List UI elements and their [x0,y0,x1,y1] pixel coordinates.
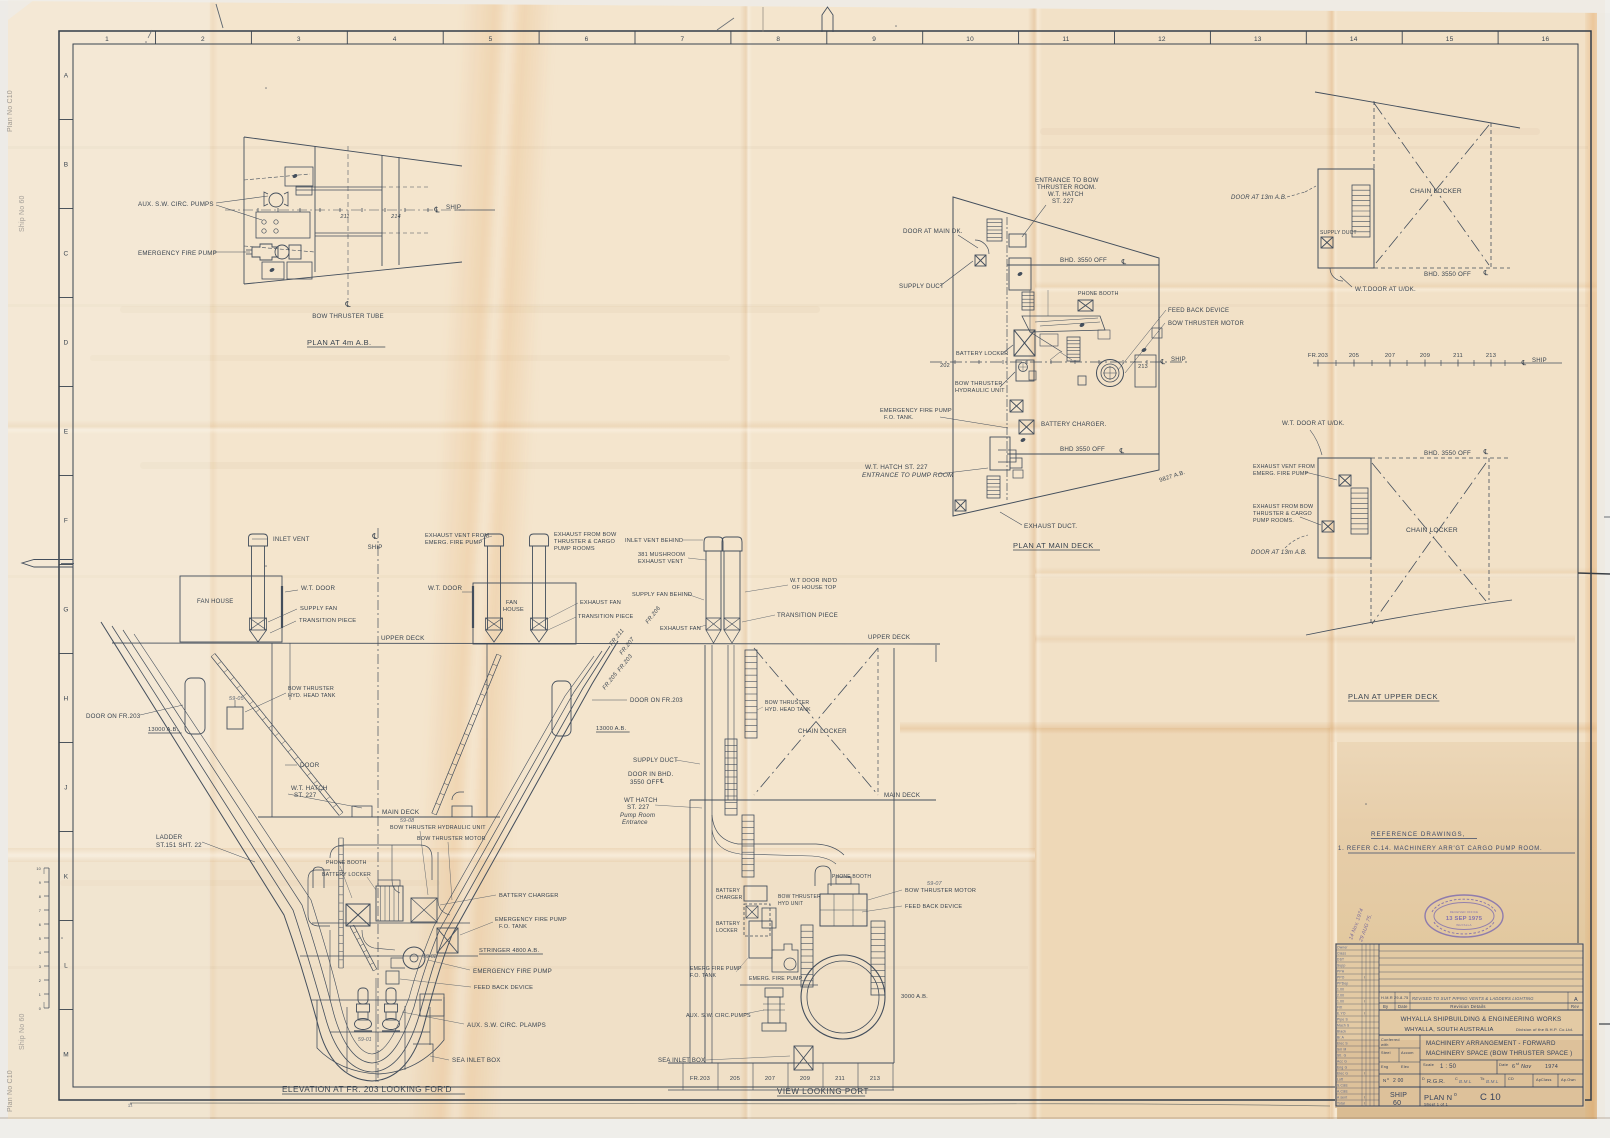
svg-text:MACHINERY ARRANGEMENT - FORWA: MACHINERY ARRANGEMENT - FORWARD [1426,1040,1556,1047]
svg-text:W.T.DOOR AT U/DK.: W.T.DOOR AT U/DK. [1355,286,1416,293]
svg-text:211: 211 [339,214,349,220]
svg-text:Elec S: Elec S [1337,1042,1348,1046]
svg-text:W.T. HATCH: W.T. HATCH [1048,192,1084,198]
svg-text:RECEIVED OFFICE: RECEIVED OFFICE [1450,910,1478,914]
svg-text:0: 0 [39,1007,41,1011]
svg-text:6: 6 [39,923,41,927]
svg-text:ST.151 SHT. 22: ST.151 SHT. 22 [156,842,202,849]
svg-text:EMERG. FIRE PUMP: EMERG. FIRE PUMP [425,540,482,546]
svg-text:BOW THRUSTER MOTOR: BOW THRUSTER MOTOR [417,836,486,842]
svg-text:59-05: 59-05 [229,696,245,702]
svg-text:DOOR IN BHD.: DOOR IN BHD. [628,771,673,778]
svg-text:INLET VENT: INLET VENT [273,537,310,543]
svg-text:with: with [1381,1043,1389,1047]
svg-text:BATTERY: BATTERY [716,921,740,927]
svg-text:EMERGENCY FIRE PUMP: EMERGENCY FIRE PUMP [473,968,552,975]
svg-text:THRUSTER ROOM.: THRUSTER ROOM. [1037,184,1096,191]
svg-text:13000 A.B.: 13000 A.B. [596,726,627,732]
svg-text:2: 2 [39,979,41,983]
svg-text:Total: Total [1337,1102,1345,1106]
svg-text:SEA INLET BOX: SEA INLET BOX [452,1057,501,1064]
svg-text:10: 10 [36,867,41,871]
svg-text:H: H [64,696,69,703]
svg-text:EMERGENCY FIRE PUMP: EMERGENCY FIRE PUMP [138,250,217,257]
svg-text:BATTERY LOCKER: BATTERY LOCKER [322,872,371,878]
svg-text:F.O. TANK: F.O. TANK [690,973,716,979]
svg-text:Br.A: Br.A [1337,1036,1345,1040]
svg-text:Plan No C10: Plan No C10 [7,90,14,132]
svg-text:INLET VENT BEHIND: INLET VENT BEHIND [625,538,683,544]
svg-text:Ship No 60: Ship No 60 [19,195,26,232]
svg-text:1974: 1974 [1545,1064,1558,1070]
svg-text:FR.206: FR.206 [645,605,663,625]
svg-text:C: C [1455,1077,1458,1081]
svg-text:15: 15 [1446,36,1454,43]
svg-text:ApClass: ApClass [1536,1078,1552,1082]
svg-text:o: o [1454,1092,1457,1098]
svg-text:3000 A.B.: 3000 A.B. [901,994,928,1000]
svg-text:F: F [64,518,68,525]
svg-text:1.00: 1.00 [1337,1000,1344,1004]
svg-text:F.O. TANK: F.O. TANK [499,924,527,930]
svg-text:Nov: Nov [1521,1064,1532,1070]
svg-text:DOOR ON FR.203: DOOR ON FR.203 [630,698,683,704]
svg-text:AUX. S.W. CIRC. PUMPS: AUX. S.W. CIRC. PUMPS [138,201,214,208]
svg-text:9: 9 [39,881,41,885]
svg-text:G: G [63,607,68,614]
svg-text:EMERGENCY FIRE PUMP: EMERGENCY FIRE PUMP [495,917,567,923]
svg-text:D: D [1422,1077,1425,1081]
svg-text:EMERGENCY FIRE PUMP: EMERGENCY FIRE PUMP [880,408,952,414]
svg-text:6: 6 [585,36,589,43]
svg-text:OF HOUSE TOP: OF HOUSE TOP [792,585,837,591]
svg-text:HYD. HEAD TANK: HYD. HEAD TANK [765,707,811,713]
svg-text:SHIP: SHIP [368,545,383,551]
svg-text:EMERG. FIRE PUMP: EMERG. FIRE PUMP [1253,471,1309,477]
svg-text:SUPPLY DUCT: SUPPLY DUCT [633,757,678,764]
svg-text:Acc G: Acc G [1337,1060,1347,1064]
svg-text:S.C&E: S.C&E [1337,1084,1348,1088]
svg-text:E: E [64,429,69,436]
svg-text:213: 213 [1486,353,1496,359]
svg-text:R.G.R.: R.G.R. [1427,1079,1445,1085]
svg-text:℄: ℄ [1121,259,1127,266]
svg-text:Tk: Tk [1480,1077,1485,1081]
svg-text:CHAIN LOCKER: CHAIN LOCKER [1406,527,1458,534]
svg-text:9827 A.B.: 9827 A.B. [1159,470,1187,484]
svg-text:8: 8 [39,895,41,899]
svg-text:Ship No 60: Ship No 60 [19,1013,26,1050]
svg-text:Supp: Supp [1337,964,1346,968]
svg-text:EMERG. FIRE PUMP: EMERG. FIRE PUMP [749,976,803,982]
svg-text:14: 14 [1350,36,1358,43]
svg-text:Fitt: Fitt [1337,1006,1342,1010]
svg-text:Sheet 1 of 1: Sheet 1 of 1 [1424,1102,1449,1107]
svg-text:M: M [63,1052,69,1059]
svg-text:BOW THRUSTER: BOW THRUSTER [288,686,334,692]
svg-text:BATTERY CHARGER.: BATTERY CHARGER. [1041,421,1107,428]
svg-text:EXHAUST VENT FROM: EXHAUST VENT FROM [1253,464,1315,470]
svg-text:℄: ℄ [659,779,664,785]
svg-text:Eng: Eng [1381,1065,1388,1069]
svg-text:LOCKER: LOCKER [716,928,738,934]
svg-text:Plan No C10: Plan No C10 [7,1070,14,1112]
svg-text:Pump Room: Pump Room [620,813,655,819]
svg-text:HOUSE: HOUSE [503,607,524,613]
svg-text:EXHAUST DUCT.: EXHAUST DUCT. [1024,523,1077,530]
svg-text:13: 13 [1254,36,1262,43]
svg-text:EMERG FIRE PUMP: EMERG FIRE PUMP [690,966,742,972]
svg-text:FR.205: FR.205 [602,671,620,691]
svg-text:PPH: PPH [1337,970,1345,974]
svg-text:PPO: PPO [1337,976,1345,980]
svg-text:J: J [64,785,67,792]
svg-text:By: By [1383,1004,1389,1009]
svg-text:3: 3 [297,36,301,43]
svg-text:o: o [1387,1077,1389,1081]
svg-text:DOOR AT MAIN DK.: DOOR AT MAIN DK. [903,228,963,235]
svg-text:A: A [1574,997,1578,1003]
svg-text:DOOR: DOOR [300,762,320,769]
svg-text:FAN: FAN [506,600,517,606]
svg-text:213: 213 [870,1076,880,1082]
svg-text:A.C&E: A.C&E [1337,1090,1348,1094]
svg-text:PHONE BOOTH: PHONE BOOTH [1078,291,1119,297]
svg-text:EXHAUST FAN: EXHAUST FAN [580,600,621,606]
svg-text:BATTERY: BATTERY [716,888,740,894]
svg-text:TRANSITION PIECE: TRANSITION PIECE [299,618,356,624]
svg-text:WHYALLA: WHYALLA [1456,923,1472,927]
svg-text:207: 207 [1385,353,1395,359]
svg-text:C 10: C 10 [1480,1092,1501,1103]
svg-text:L: L [64,963,68,970]
svg-text:FR.207: FR.207 [619,636,637,656]
svg-text:2.00: 2.00 [1337,994,1344,998]
svg-text:Pipe S: Pipe S [1337,1018,1349,1022]
svg-text:N: N [1383,1078,1386,1083]
svg-text:FEED BACK DEVICE: FEED BACK DEVICE [905,904,962,910]
svg-text:BATTERY CHARGER: BATTERY CHARGER [499,893,559,899]
svg-text:SHIP: SHIP [1390,1092,1407,1099]
svg-text:6: 6 [1512,1064,1515,1070]
svg-text:Snl M: Snl M [1337,1048,1346,1052]
svg-text:W.T. DOOR AT U/DK.: W.T. DOOR AT U/DK. [1282,420,1345,427]
svg-text:Black: Black [1337,1030,1346,1034]
svg-text:K: K [64,874,69,881]
svg-text:W.T. HATCH ST. 227: W.T. HATCH ST. 227 [865,464,928,471]
svg-text:1 : 50: 1 : 50 [1440,1064,1457,1070]
svg-text:BOW THRUSTER: BOW THRUSTER [765,700,809,706]
svg-text:℄: ℄ [1483,270,1489,277]
svg-text:PLAN AT MAIN DECK: PLAN AT MAIN DECK [1013,541,1094,550]
svg-text:TRANSITION PIECE: TRANSITION PIECE [578,614,633,620]
svg-text:BOW THRUSTER HYDRAULIC UNIT: BOW THRUSTER HYDRAULIC UNIT [390,825,486,831]
svg-text:4: 4 [39,951,41,955]
svg-text:SEA INLET BOX: SEA INLET BOX [658,1058,705,1064]
svg-text:℄: ℄ [371,532,378,541]
svg-text:EXHAUST VENT: EXHAUST VENT [638,559,684,565]
svg-text:CHAIN LOCKER: CHAIN LOCKER [1410,188,1462,195]
svg-text:W.T DOOR IND'D: W.T DOOR IND'D [790,578,837,584]
svg-text:CHARGER: CHARGER [716,895,743,901]
svg-text:MAIN DECK: MAIN DECK [382,809,420,816]
svg-text:211: 211 [1453,353,1463,359]
svg-text:Entrance: Entrance [622,820,648,826]
svg-text:Owner: Owner [1337,946,1348,950]
svg-text:FAN HOUSE: FAN HOUSE [197,599,233,605]
svg-text:Loft: Loft [1337,1078,1343,1082]
svg-text:211: 211 [835,1076,845,1082]
svg-text:60: 60 [1393,1100,1401,1107]
svg-text:Date: Date [1398,1004,1408,1009]
svg-text:202: 202 [940,363,950,369]
svg-text:B: B [64,162,69,169]
svg-text:℄: ℄ [1483,449,1489,456]
svg-text:EXHAUST FROM BOW: EXHAUST FROM BOW [554,532,617,538]
svg-text:℄: ℄ [344,300,351,309]
svg-text:C: C [64,251,69,258]
svg-text:WHYALLA, SOUTH AUSTRALIA: WHYALLA, SOUTH AUSTRALIA [1404,1027,1493,1033]
svg-text:℄: ℄ [433,206,440,215]
svg-text:PHONE BOOTH: PHONE BOOTH [832,874,871,880]
svg-text:ENTRANCE TO PUMP ROOM: ENTRANCE TO PUMP ROOM [862,472,954,479]
svg-text:HYD UNIT: HYD UNIT [778,901,803,907]
svg-text:10: 10 [966,36,974,43]
svg-text:BOW THRUSTER: BOW THRUSTER [955,381,1003,387]
svg-text:1: 1 [39,993,41,997]
svg-text:A: A [64,73,69,80]
svg-text:TRANSITION PIECE: TRANSITION PIECE [777,612,838,619]
svg-text:DOOR ON FR.203: DOOR ON FR.203 [86,713,141,720]
svg-text:CHAIN LOCKER: CHAIN LOCKER [798,728,847,735]
svg-text:381 MUSHROOM: 381 MUSHROOM [638,552,685,558]
svg-text:PPDep: PPDep [1337,982,1348,986]
svg-text:AUX. S.W. CIRC.PUMPS: AUX. S.W. CIRC.PUMPS [686,1013,751,1019]
svg-text:Steel: Steel [1381,1051,1391,1055]
svg-text:REVISED TO SUIT PIPING VENTS &: REVISED TO SUIT PIPING VENTS & LADDERS L… [1412,996,1534,1001]
svg-text:LADDER: LADDER [156,834,183,841]
svg-text:HYDRAULIC UNIT: HYDRAULIC UNIT [955,388,1005,394]
svg-text:Rev: Rev [1571,1004,1580,1009]
svg-text:9: 9 [872,36,876,43]
svg-text:FEED BACK DEVICE: FEED BACK DEVICE [474,985,533,991]
svg-text:UPPER DECK: UPPER DECK [381,635,425,642]
svg-text:Class: Class [1337,952,1346,956]
svg-text:ENTRANCE TO BOW: ENTRANCE TO BOW [1035,177,1099,184]
svg-text:2: 2 [201,36,205,43]
svg-text:PLAN AT 4m A.B.: PLAN AT 4m A.B. [307,338,372,347]
svg-text:CD: CD [1508,1077,1514,1081]
svg-text:11: 11 [1062,36,1069,43]
svg-text:FR.211: FR.211 [609,628,626,647]
svg-text:BHD. 3550 OFF: BHD. 3550 OFF [1060,257,1107,264]
svg-text:ST. 227: ST. 227 [627,804,650,811]
svg-text:5: 5 [39,937,41,941]
svg-text:SUPPLY DUCT: SUPPLY DUCT [1320,230,1357,236]
svg-text:AUX. S.W. CIRC. PLAMPS: AUX. S.W. CIRC. PLAMPS [467,1022,546,1029]
svg-text:WHYALLA SHIPBUILDING & ENGINEE: WHYALLA SHIPBUILDING & ENGINEERING WORKS [1401,1016,1562,1023]
svg-text:Accom: Accom [1401,1051,1414,1055]
svg-text:205: 205 [1349,353,1359,359]
svg-text:214: 214 [390,214,401,220]
svg-text:BHD. 3550 OFF: BHD. 3550 OFF [1424,450,1471,457]
svg-text:8: 8 [776,36,780,43]
svg-text:℄: ℄ [1521,360,1527,367]
svg-text:13000 A.B.: 13000 A.B. [148,727,179,733]
svg-text:Revision Details: Revision Details [1450,1004,1486,1009]
svg-text:59-02: 59-02 [423,954,437,960]
svg-text:Elec: Elec [1401,1065,1409,1069]
svg-text:13 SEP 1975: 13 SEP 1975 [1446,916,1483,922]
svg-text:Stl. G: Stl. G [1337,1054,1347,1058]
svg-text:FR.203: FR.203 [617,653,635,673]
svg-text:207: 207 [765,1076,775,1082]
svg-text:PUMP ROOMS.: PUMP ROOMS. [1253,518,1294,524]
svg-text:st: st [1516,1062,1519,1066]
svg-text:ST. 227: ST. 227 [1052,199,1074,205]
svg-text:Mach S: Mach S [1337,1024,1350,1028]
svg-text:VIEW LOOKING PORT: VIEW LOOKING PORT [777,1087,869,1096]
svg-text:W.T. HATCH: W.T. HATCH [291,785,328,792]
svg-text:A sent: A sent [1337,1096,1347,1100]
svg-text:EXHAUST FROM BOW: EXHAUST FROM BOW [1253,504,1314,510]
svg-text:2 00: 2 00 [1393,1078,1404,1084]
svg-text:1: 1 [105,36,109,43]
svg-text:209: 209 [800,1076,810,1082]
svg-text:SUPPLY FAN BEHIND: SUPPLY FAN BEHIND [632,592,692,598]
svg-text:5: 5 [489,36,493,43]
svg-text:59-07: 59-07 [927,881,943,887]
svg-text:FR.203: FR.203 [1308,353,1328,359]
svg-text:HYD. HEAD TANK: HYD. HEAD TANK [288,693,336,699]
svg-text:3: 3 [39,965,41,969]
svg-text:DST: DST [1337,958,1344,962]
svg-text:℄: ℄ [1160,359,1166,366]
svg-text:FR.203: FR.203 [690,1076,710,1082]
svg-text:SHIP: SHIP [1532,358,1547,364]
svg-text:1. REFER C.14. MACHINERY: 1. REFER C.14. MACHINERY ARR'GT CARGO PU… [1338,846,1542,852]
svg-text:STRINGER 4800 A.B.: STRINGER 4800 A.B. [479,948,539,954]
svg-text:1.00: 1.00 [1337,988,1344,992]
svg-text:BOW THRUSTER TUBE: BOW THRUSTER TUBE [312,313,384,320]
svg-text:E.YO: E.YO [1337,1012,1346,1016]
svg-text:PLAN AT UPPER DECK: PLAN AT UPPER DECK [1348,692,1438,701]
svg-text:EXHAUST VENT FROM: EXHAUST VENT FROM [425,533,489,539]
svg-text:REFERENCE DRAWINGS,: REFERENCE DRAWINGS, [1371,831,1465,838]
svg-text:BOW THRUSTER MOTOR: BOW THRUSTER MOTOR [1168,321,1245,327]
svg-text:3550 OFF: 3550 OFF [630,779,659,786]
svg-text:WT HATCH: WT HATCH [624,797,658,804]
svg-text:Elec G: Elec G [1337,1072,1348,1076]
svg-text:SHIP: SHIP [1171,357,1186,363]
svg-text:SUPPLY FAN: SUPPLY FAN [300,606,337,612]
svg-text:D: D [64,340,69,347]
svg-text:12: 12 [1158,36,1166,43]
svg-text:Ap.Own: Ap.Own [1561,1078,1576,1082]
svg-text:205: 205 [730,1076,740,1082]
svg-text:213: 213 [1138,364,1148,370]
svg-text:PHONE BOOTH: PHONE BOOTH [326,860,367,866]
svg-text:ST. 227: ST. 227 [294,792,317,799]
svg-text:16: 16 [1542,36,1550,43]
svg-text:B.M.L: B.M.L [1459,1079,1472,1084]
svg-text:W.T. DOOR: W.T. DOOR [428,585,462,592]
svg-text:209: 209 [1420,353,1430,359]
svg-text:BATTERY LOCKER: BATTERY LOCKER [956,351,1009,357]
svg-text:BHD. 3550 OFF: BHD. 3550 OFF [1424,271,1471,278]
svg-text:7: 7 [680,36,684,43]
svg-text:4: 4 [393,36,397,43]
svg-text:Division of the B.H.P. Co.Ltd.: Division of the B.H.P. Co.Ltd. [1516,1027,1573,1032]
svg-text:59-01: 59-01 [358,1037,372,1043]
svg-text:Scale: Scale [1423,1062,1435,1067]
svg-text:UPPER DECK: UPPER DECK [868,634,911,641]
svg-text:F.O. TANK.: F.O. TANK. [884,415,914,421]
svg-text:EXHAUST FAN: EXHAUST FAN [660,626,701,632]
svg-text:MACHINERY SPACE (BOW THRUSTE: MACHINERY SPACE (BOW THRUSTER SPACE ) [1426,1050,1572,1057]
svg-text:7: 7 [39,909,41,913]
svg-text:SUPPLY DUCT: SUPPLY DUCT [899,283,944,290]
svg-text:ELEVATION AT FR. 203 LOOKIN: ELEVATION AT FR. 203 LOOKING FOR'D [282,1084,452,1094]
svg-text:DOOR AT 13m A.B.: DOOR AT 13m A.B. [1251,550,1307,556]
svg-text:PUMP ROOMS: PUMP ROOMS [554,546,595,552]
svg-text:BOW THRUSTER: BOW THRUSTER [778,894,821,900]
svg-text:Date: Date [1499,1062,1509,1067]
svg-text:B.M.L: B.M.L [1486,1079,1499,1084]
svg-text:FEED BACK DEVICE: FEED BACK DEVICE [1168,308,1229,314]
svg-text:℄: ℄ [1119,448,1125,455]
svg-text:Conferred: Conferred [1381,1038,1400,1042]
svg-text:DOOR AT 13m A.B.: DOOR AT 13m A.B. [1231,195,1287,201]
svg-text:59-08: 59-08 [400,818,414,824]
svg-text:THRUSTER & CARGO: THRUSTER & CARGO [1253,511,1312,517]
svg-text:W.T. DOOR: W.T. DOOR [301,585,335,592]
svg-text:THRUSTER & CARGO: THRUSTER & CARGO [554,539,615,545]
svg-text:MAIN DECK: MAIN DECK [884,792,921,799]
svg-text:BOW THRUSTER MOTOR: BOW THRUSTER MOTOR [905,888,976,894]
svg-text:Eng G: Eng G [1337,1066,1348,1070]
svg-text:BHD 3550 OFF: BHD 3550 OFF [1060,446,1105,453]
